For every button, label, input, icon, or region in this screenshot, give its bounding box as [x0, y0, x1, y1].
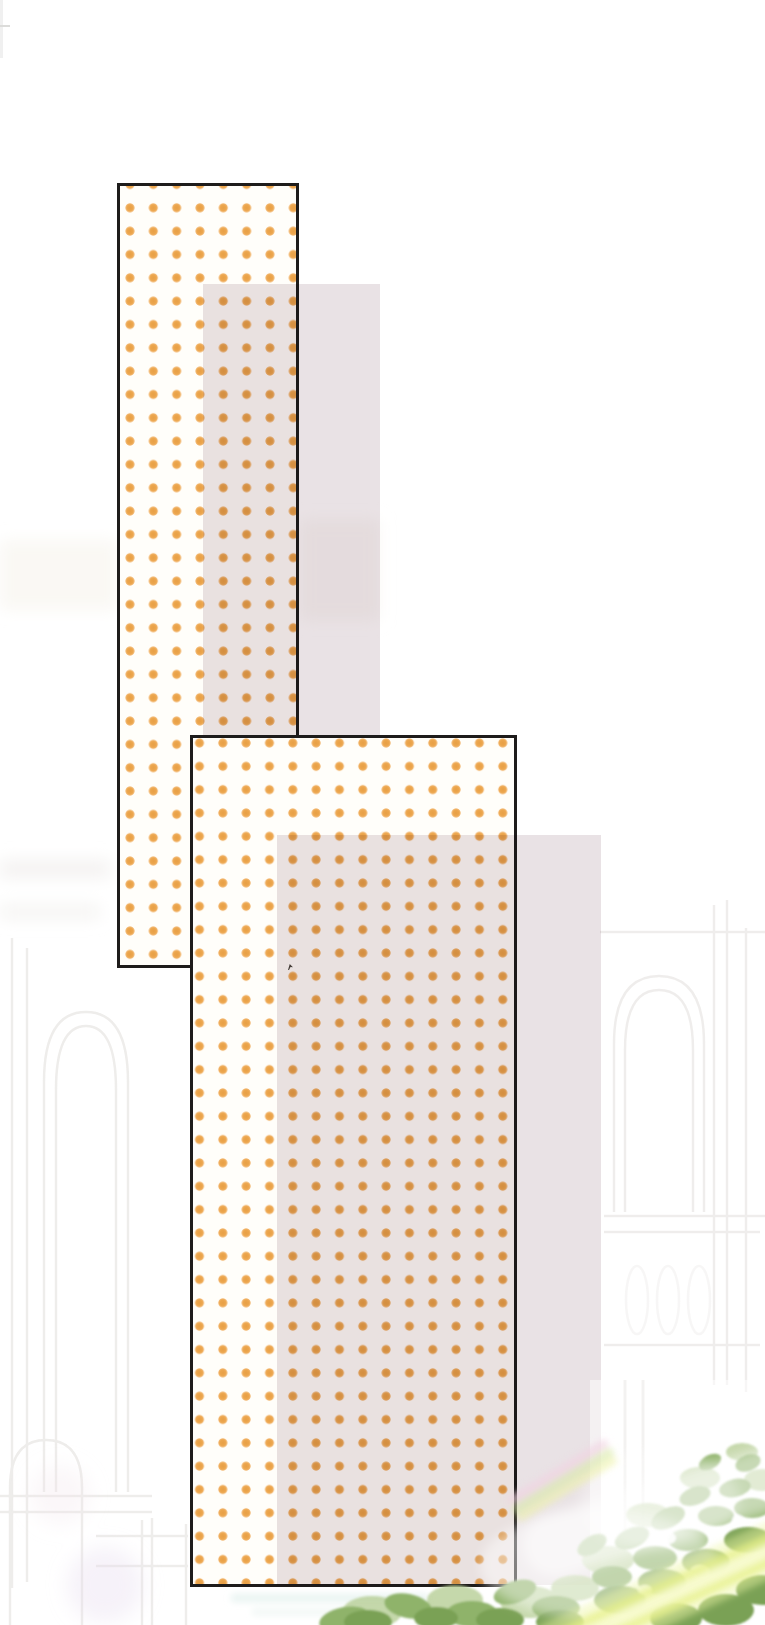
foliage-and-light: [0, 1380, 765, 1625]
right-facade-lines: [600, 900, 765, 1392]
lavender-overlay-1: [203, 284, 380, 735]
page-edge-shade: [0, 0, 3, 58]
lilac-glow: [30, 1465, 143, 1623]
comic-page: [0, 0, 765, 1625]
